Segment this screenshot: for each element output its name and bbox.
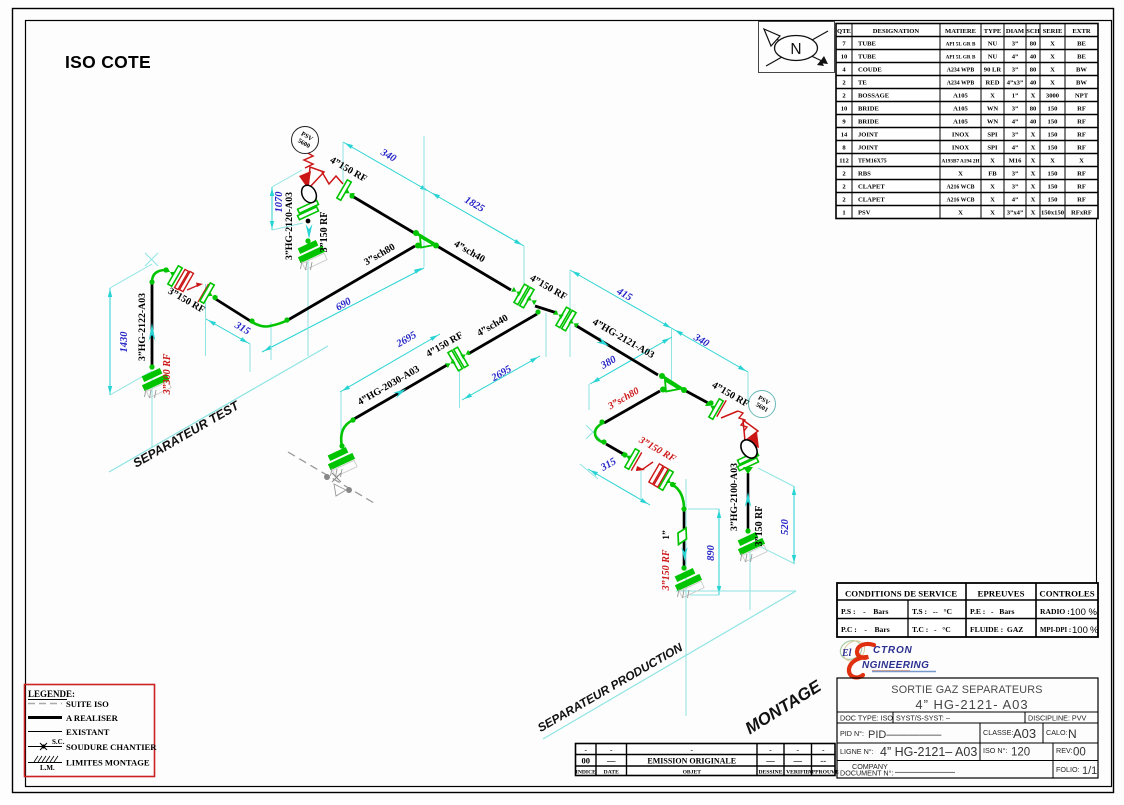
svg-text:TFM16X75: TFM16X75 xyxy=(858,159,887,165)
svg-text:3”150 RF: 3”150 RF xyxy=(754,506,765,547)
svg-text:150x150: 150x150 xyxy=(1041,210,1065,217)
svg-text:40: 40 xyxy=(1030,80,1037,87)
svg-text:INOX: INOX xyxy=(952,145,969,152)
svg-text:M16: M16 xyxy=(1009,158,1023,165)
svg-text:QTE: QTE xyxy=(837,28,852,35)
svg-text:CTRON: CTRON xyxy=(873,645,913,656)
svg-text:FB: FB xyxy=(988,171,997,178)
svg-text:4” HG-2121– A03: 4” HG-2121– A03 xyxy=(880,745,977,759)
svg-text:ISO N°:: ISO N°: xyxy=(983,746,1007,755)
svg-text:150: 150 xyxy=(1048,197,1059,204)
svg-text:--: -- xyxy=(820,756,826,766)
svg-text:3”x4”: 3”x4” xyxy=(1007,210,1023,217)
svg-text:P.S : - Bars: P.S : - Bars xyxy=(841,607,888,616)
svg-text:INOX: INOX xyxy=(952,132,969,139)
svg-text:3”: 3” xyxy=(1012,106,1019,113)
svg-text:DOC TYPE: ISO: DOC TYPE: ISO xyxy=(840,714,893,723)
svg-text:3”150 RF: 3”150 RF xyxy=(661,549,672,591)
svg-text:150: 150 xyxy=(1048,106,1059,113)
svg-text:3”: 3” xyxy=(1012,184,1019,191)
svg-text:El: El xyxy=(841,648,852,659)
svg-text:SOUDURE CHANTIER: SOUDURE CHANTIER xyxy=(66,742,157,752)
svg-text:EMISSION ORIGINALE: EMISSION ORIGINALE xyxy=(647,757,736,766)
svg-text:520: 520 xyxy=(780,518,791,535)
svg-text:APPROUVE: APPROUVE xyxy=(808,770,839,776)
svg-text:EXISTANT: EXISTANT xyxy=(66,727,110,737)
svg-text:REV:: REV: xyxy=(1056,746,1073,755)
svg-text:T.C : - °C: T.C : - °C xyxy=(912,625,951,634)
svg-text:INDICE: INDICE xyxy=(576,770,596,776)
svg-text:X: X xyxy=(990,210,995,217)
svg-text:150: 150 xyxy=(1048,119,1059,126)
svg-text:3000: 3000 xyxy=(1046,93,1060,100)
svg-text:80: 80 xyxy=(1030,41,1037,48)
svg-text:CALO:: CALO: xyxy=(1046,728,1068,737)
svg-text:MATIERE: MATIERE xyxy=(945,28,977,35)
svg-text:PID—————: PID————— xyxy=(868,729,941,741)
svg-text:L.M.: L.M. xyxy=(40,764,55,772)
svg-text:API 5L GR B: API 5L GR B xyxy=(946,55,976,61)
svg-text:100: 100 xyxy=(1072,625,1088,636)
svg-text:X: X xyxy=(958,171,963,178)
svg-text:A REALISER: A REALISER xyxy=(66,713,119,723)
svg-text:X: X xyxy=(1031,132,1036,139)
svg-text:%: % xyxy=(1090,625,1099,636)
svg-text:VERIFIE: VERIFIE xyxy=(786,770,810,776)
svg-text:X: X xyxy=(1050,41,1055,48)
svg-text:120: 120 xyxy=(1011,747,1030,759)
svg-text:3”: 3” xyxy=(1012,132,1019,139)
svg-text:X: X xyxy=(1031,184,1036,191)
svg-text:DISCIPLINE: PVV: DISCIPLINE: PVV xyxy=(1028,714,1087,723)
svg-text:112: 112 xyxy=(839,158,849,165)
svg-text:BE: BE xyxy=(1077,41,1086,48)
svg-text:00: 00 xyxy=(582,756,591,766)
svg-text:WN: WN xyxy=(987,119,999,126)
svg-text:NU: NU xyxy=(988,54,998,61)
svg-text:LEGENDE:: LEGENDE: xyxy=(28,689,75,699)
svg-text:X: X xyxy=(990,158,995,165)
svg-text:TYPE: TYPE xyxy=(984,28,1002,35)
svg-text:3”300 RF: 3”300 RF xyxy=(162,353,173,395)
svg-text:ISO COTE: ISO COTE xyxy=(65,52,151,72)
svg-text:SYST/S-SYST: –: SYST/S-SYST: – xyxy=(896,714,950,723)
svg-text:BRIDE: BRIDE xyxy=(858,106,879,113)
svg-text:FLUIDE : GAZ: FLUIDE : GAZ xyxy=(970,625,1023,634)
svg-text:BE: BE xyxy=(1077,54,1086,61)
svg-text:X: X xyxy=(1031,93,1036,100)
svg-text:150: 150 xyxy=(1048,171,1059,178)
svg-text:RF: RF xyxy=(1077,197,1086,204)
svg-text:WN: WN xyxy=(987,106,999,113)
svg-text:PSV: PSV xyxy=(858,210,871,217)
svg-text:P.E : - Bars: P.E : - Bars xyxy=(970,607,1014,616)
svg-text:RF: RF xyxy=(1077,132,1086,139)
svg-text:A234 WPB: A234 WPB xyxy=(947,81,975,87)
svg-text:X: X xyxy=(1050,54,1055,61)
svg-text:X: X xyxy=(1079,158,1084,165)
svg-text:150: 150 xyxy=(1048,184,1059,191)
svg-text:1”: 1” xyxy=(1012,93,1019,100)
svg-text:X: X xyxy=(1031,145,1036,152)
svg-text:X: X xyxy=(990,197,995,204)
svg-text:N: N xyxy=(790,41,801,58)
svg-text:3”150 RF: 3”150 RF xyxy=(319,212,330,253)
svg-text:EXTR: EXTR xyxy=(1072,28,1091,35)
svg-text:RF: RF xyxy=(1077,106,1086,113)
svg-text:150: 150 xyxy=(1048,132,1059,139)
svg-text:A105: A105 xyxy=(953,119,968,126)
svg-text:MPI-DPI :: MPI-DPI : xyxy=(1040,627,1071,634)
svg-text:CONDITIONS DE SERVICE: CONDITIONS DE SERVICE xyxy=(845,589,957,599)
svg-text:X: X xyxy=(990,93,995,100)
svg-text:COUDE: COUDE xyxy=(858,67,882,74)
svg-text:A216 WCB: A216 WCB xyxy=(946,198,974,204)
svg-text:A105: A105 xyxy=(953,106,968,113)
svg-text:40: 40 xyxy=(1030,119,1037,126)
svg-text:RF: RF xyxy=(1077,171,1086,178)
svg-text:TE: TE xyxy=(858,80,867,87)
svg-text:3”: 3” xyxy=(1012,171,1019,178)
svg-text:CLAPET: CLAPET xyxy=(858,197,885,204)
svg-text:RF: RF xyxy=(1077,119,1086,126)
svg-text:14: 14 xyxy=(841,132,848,139)
svg-text:SUITE ISO: SUITE ISO xyxy=(66,699,109,709)
svg-text:A234 WPB: A234 WPB xyxy=(947,68,975,74)
svg-text:P.C : - Bars: P.C : - Bars xyxy=(841,625,890,634)
svg-text:890: 890 xyxy=(706,544,717,561)
svg-text:S.C.: S.C. xyxy=(52,738,65,746)
svg-text:NU: NU xyxy=(988,41,998,48)
svg-text:EPREUVES: EPREUVES xyxy=(978,589,1025,599)
svg-text:3”: 3” xyxy=(1012,41,1019,48)
svg-text:TUBE: TUBE xyxy=(858,54,877,61)
svg-text:SPI: SPI xyxy=(987,145,998,152)
svg-text:80: 80 xyxy=(1030,106,1037,113)
svg-text:BRIDE: BRIDE xyxy=(858,119,879,126)
svg-text:X: X xyxy=(1050,158,1055,165)
svg-text:JOINT: JOINT xyxy=(858,132,879,139)
svg-text:RF: RF xyxy=(1077,184,1086,191)
svg-text:A216 WCB: A216 WCB xyxy=(946,185,974,191)
svg-text:—: — xyxy=(793,756,803,766)
svg-text:1430: 1430 xyxy=(119,331,130,353)
svg-text:DIAM: DIAM xyxy=(1006,28,1025,35)
svg-text:RF: RF xyxy=(1077,145,1086,152)
svg-text:80: 80 xyxy=(1030,67,1037,74)
svg-text:1: 1 xyxy=(842,210,845,217)
svg-text:X: X xyxy=(1031,210,1036,217)
svg-text:4”x3”: 4”x3” xyxy=(1007,80,1023,87)
svg-text:4” HG-2121- A03: 4” HG-2121- A03 xyxy=(915,697,1028,712)
svg-text:A193B7 A194 2H: A193B7 A194 2H xyxy=(941,159,979,165)
svg-text:4”: 4” xyxy=(1012,145,1019,152)
svg-text:RADIO :: RADIO : xyxy=(1040,607,1070,616)
svg-text:CLAPET: CLAPET xyxy=(858,184,885,191)
svg-text:OBJET: OBJET xyxy=(683,770,702,776)
svg-text:X: X xyxy=(958,210,963,217)
svg-text:RBS: RBS xyxy=(858,171,871,178)
svg-text:TUBE: TUBE xyxy=(858,41,877,48)
svg-text:DATE: DATE xyxy=(604,770,619,776)
svg-text:N: N xyxy=(1068,727,1077,741)
svg-text:4”: 4” xyxy=(1012,197,1019,204)
svg-text:X: X xyxy=(1031,171,1036,178)
svg-text:DOCUMENT N°:: DOCUMENT N°: xyxy=(840,769,893,778)
svg-text:T.S : -- °C: T.S : -- °C xyxy=(912,607,952,616)
svg-text:LIGNE N°:: LIGNE N°: xyxy=(840,747,874,756)
svg-text:SCH: SCH xyxy=(1026,28,1040,35)
svg-text:1”: 1” xyxy=(662,530,672,540)
svg-text:A105: A105 xyxy=(953,93,968,100)
svg-text:——————: —————— xyxy=(895,767,955,778)
svg-text:DESSINE: DESSINE xyxy=(759,770,783,776)
svg-text:A03: A03 xyxy=(1013,726,1036,741)
svg-text:CLASSE:: CLASSE: xyxy=(983,728,1013,737)
svg-text:X: X xyxy=(1050,80,1055,87)
svg-text:DESIGNATION: DESIGNATION xyxy=(873,28,920,35)
svg-text:4”: 4” xyxy=(1012,119,1019,126)
svg-text:BW: BW xyxy=(1076,80,1087,87)
svg-text:—: — xyxy=(765,756,775,766)
svg-text:10: 10 xyxy=(841,54,848,61)
svg-text:LIMITES MONTAGE: LIMITES MONTAGE xyxy=(66,758,150,768)
svg-text:1/1: 1/1 xyxy=(1082,765,1097,777)
svg-text:3”HG-2122-A03: 3”HG-2122-A03 xyxy=(137,293,148,361)
svg-text:BOSSAGE: BOSSAGE xyxy=(858,93,890,100)
svg-text:90 LR: 90 LR xyxy=(984,67,1002,74)
svg-text:RED: RED xyxy=(986,80,1000,87)
svg-text:4”: 4” xyxy=(1012,54,1019,61)
svg-text:3”: 3” xyxy=(1012,67,1019,74)
svg-text:X: X xyxy=(1031,158,1036,165)
svg-text:PID N°:: PID N°: xyxy=(840,729,864,738)
svg-text:X: X xyxy=(1031,197,1036,204)
svg-text:3”HG-2100-A03: 3”HG-2100-A03 xyxy=(729,463,740,531)
svg-text:10: 10 xyxy=(841,106,848,113)
svg-text:40: 40 xyxy=(1030,54,1037,61)
svg-text:00: 00 xyxy=(1073,747,1086,759)
svg-text:SORTIE GAZ SEPARATEURS: SORTIE GAZ SEPARATEURS xyxy=(891,684,1042,696)
svg-text:SPI: SPI xyxy=(987,132,998,139)
svg-text:NGINEERING: NGINEERING xyxy=(862,660,929,671)
svg-text:SERIE: SERIE xyxy=(1043,28,1063,35)
svg-text:CONTROLES: CONTROLES xyxy=(1039,589,1094,599)
svg-text:NPT: NPT xyxy=(1075,93,1089,100)
svg-text:—: — xyxy=(606,756,616,766)
svg-text:X: X xyxy=(990,184,995,191)
svg-text:100 %: 100 % xyxy=(1070,607,1097,618)
svg-text:BW: BW xyxy=(1076,67,1087,74)
svg-text:JOINT: JOINT xyxy=(858,145,879,152)
svg-text:API 5L GR B: API 5L GR B xyxy=(946,42,976,48)
svg-text:150: 150 xyxy=(1048,145,1059,152)
svg-text:RFxRF: RFxRF xyxy=(1071,210,1092,217)
svg-text:FOLIO:: FOLIO: xyxy=(1056,765,1080,774)
svg-text:X: X xyxy=(1050,67,1055,74)
svg-text:3”HG-2120-A03: 3”HG-2120-A03 xyxy=(284,192,295,260)
